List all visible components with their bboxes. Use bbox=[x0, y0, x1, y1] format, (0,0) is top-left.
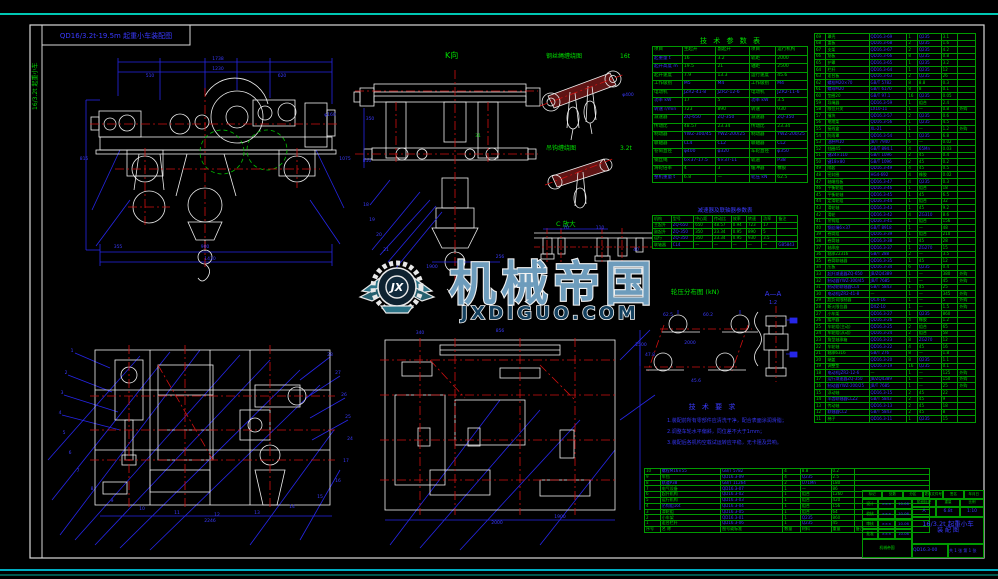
table-cell bbox=[958, 212, 976, 219]
table-cell: QD16.3-49 bbox=[869, 165, 907, 172]
dim-text: 1 bbox=[71, 348, 74, 354]
table-cell: 组合 bbox=[917, 185, 941, 192]
table-cell: 外购 bbox=[958, 271, 976, 278]
table-cell: QD16.3-41 bbox=[869, 218, 907, 225]
k-view-label: K向 bbox=[445, 50, 458, 60]
table-cell: QD16.3-26 bbox=[869, 317, 907, 324]
table-cell: GB/T 8918 bbox=[869, 225, 907, 232]
table-cell: LX10-11 bbox=[869, 106, 907, 113]
dim-text: 355 bbox=[114, 244, 123, 250]
title-block-sign-cell: ××× bbox=[878, 519, 895, 529]
table-cell bbox=[958, 310, 976, 317]
table-cell: 45 bbox=[815, 192, 826, 199]
table-cell: 6×37-17.5 bbox=[682, 157, 716, 166]
table-cell: Q235 bbox=[917, 264, 941, 271]
table-cell: 端盖 bbox=[826, 357, 869, 364]
table-cell: 2 bbox=[907, 152, 918, 159]
table-cell: — bbox=[917, 350, 941, 357]
table-cell: QD16.3-39 bbox=[869, 231, 907, 238]
dim-text: 20 bbox=[376, 232, 382, 238]
table-cell: 36 bbox=[815, 251, 826, 258]
table-cell bbox=[958, 113, 976, 120]
table-cell: 45 bbox=[917, 159, 941, 166]
table-cell: GB/T 288 bbox=[869, 251, 907, 258]
table-cell: 45 bbox=[917, 238, 941, 245]
dim-text: φ160 bbox=[324, 112, 336, 118]
table-cell: 11 bbox=[815, 416, 826, 423]
table-cell: QD16.3-13 bbox=[869, 403, 907, 410]
table-cell: QD16.3-27 bbox=[869, 310, 907, 317]
table-cell: 17 bbox=[815, 376, 826, 383]
table-cell: 2 bbox=[907, 73, 918, 80]
table-cell: CL2 bbox=[776, 140, 808, 149]
table-cell: 0.02 bbox=[941, 172, 958, 179]
table-cell: 平衡轮轴 bbox=[826, 192, 869, 199]
dim-text: 14 bbox=[289, 504, 295, 510]
table-cell: Q235 bbox=[917, 40, 941, 47]
table-cell bbox=[958, 198, 976, 205]
table-cell: — bbox=[869, 370, 907, 377]
table-cell: 组合 bbox=[917, 330, 941, 337]
table-cell: JB/T 7685 bbox=[869, 383, 907, 390]
table-cell: 45 bbox=[917, 343, 941, 350]
table-cell: 38 bbox=[815, 238, 826, 245]
table-cell: 转速 r/min bbox=[653, 106, 683, 115]
table-cell bbox=[958, 357, 976, 364]
table-cell: 组合 bbox=[917, 231, 941, 238]
table-cell: 8.6 bbox=[941, 212, 958, 219]
table-cell: — bbox=[917, 271, 941, 278]
table-cell: 2 bbox=[907, 403, 918, 410]
table-cell: 33 bbox=[815, 271, 826, 278]
table-cell: — bbox=[917, 297, 941, 304]
table-cell: 轴端挡板 bbox=[826, 179, 869, 186]
table-cell: 1 bbox=[907, 376, 918, 383]
title-block-header-cell: 更改文件号 bbox=[923, 490, 943, 499]
table-cell: 隔套 bbox=[826, 165, 869, 172]
table-cell: 150 bbox=[941, 376, 958, 383]
table-cell: — bbox=[869, 291, 907, 298]
table-cell: 1 bbox=[907, 106, 918, 113]
table-cell: 螺栓M20×70 bbox=[826, 80, 869, 87]
table-cell: 运行减速器ZQ-350 bbox=[826, 376, 869, 383]
table-cell: DXZ-10 bbox=[869, 304, 907, 311]
table-cell: QD16.3-19 bbox=[869, 363, 907, 370]
table-cell: ZG310 bbox=[917, 212, 941, 219]
table-cell: 7.9 bbox=[682, 72, 716, 81]
table-cell: 1 bbox=[907, 185, 918, 192]
table-cell: 1 bbox=[907, 271, 918, 278]
dim-text: 2000 bbox=[491, 520, 503, 526]
tech-requirements: 技 术 要 求 1.装配前所有零部件应清洗干净，配合表面涂润滑脂； 2.调整车轮… bbox=[667, 402, 787, 446]
table-cell: 15 bbox=[941, 416, 958, 423]
table-cell: 1 bbox=[907, 258, 918, 265]
table-cell: 卷筒组 bbox=[826, 231, 869, 238]
table-cell: GB/T 5843 bbox=[869, 409, 907, 416]
table-cell: 45 bbox=[917, 258, 941, 265]
dim-text: φ400 bbox=[622, 92, 634, 98]
table-cell: YWZ-200/25 bbox=[716, 132, 750, 141]
dim-text: 28 bbox=[327, 352, 333, 358]
table-cell: 20 bbox=[815, 357, 826, 364]
table-cell bbox=[958, 330, 976, 337]
table-cell: QD16.3-38 bbox=[869, 238, 907, 245]
table-cell: 1 bbox=[907, 225, 918, 232]
table-cell: 49 bbox=[815, 165, 826, 172]
table-cell bbox=[958, 152, 976, 159]
table-cell bbox=[958, 238, 976, 245]
table-cell: ZQ-350 bbox=[776, 115, 808, 124]
stage-header-cell: 重量 bbox=[936, 499, 960, 507]
table-cell: 联轴器 bbox=[653, 140, 683, 149]
dim-text: 815 bbox=[80, 156, 89, 162]
table-cell: 1 bbox=[907, 231, 918, 238]
table-cell: 13.3 bbox=[716, 72, 750, 81]
table-cell: 12 bbox=[941, 258, 958, 265]
table-cell: 0.02 bbox=[941, 139, 958, 146]
table-cell: 28 bbox=[815, 304, 826, 311]
table-cell: QD16.3-56 bbox=[869, 119, 907, 126]
tech-req-line: 3.装配后各机构空载试运转应平稳，无卡阻及异响。 bbox=[667, 439, 782, 446]
table-cell: — bbox=[716, 174, 750, 183]
table-cell: 4.5 bbox=[941, 119, 958, 126]
table-cell: 0.4 bbox=[941, 264, 958, 271]
table-cell: 45 bbox=[917, 403, 941, 410]
table-cell: 名 称 bbox=[660, 526, 720, 532]
tech-req-title: 技 术 要 求 bbox=[689, 402, 738, 411]
table-cell: — bbox=[917, 383, 941, 390]
dim-text: 19 bbox=[369, 217, 375, 223]
table-cell: QCX-16 bbox=[869, 297, 907, 304]
section-aa-view: A—A 1:2 bbox=[755, 290, 798, 382]
table-cell: 23.34 bbox=[716, 123, 750, 132]
tech-param-table: 项目主起升副起升项目运行机构起重量 t163.2轨距2000起升高度 m19.5… bbox=[652, 46, 808, 183]
title-block-sign-cell: 10.06 bbox=[895, 519, 912, 529]
table-cell: 滑轮轴 bbox=[826, 205, 869, 212]
table-cell: M4 bbox=[716, 81, 750, 90]
table-cell: 15 bbox=[941, 245, 958, 252]
title-block-sign-cell: 校核 bbox=[862, 509, 878, 519]
table-cell: 25 bbox=[941, 284, 958, 291]
table-cell: 轴承座 bbox=[826, 245, 869, 252]
table-cell: CL4 bbox=[682, 140, 716, 149]
table-cell: 13 bbox=[815, 403, 826, 410]
table-cell: 45 bbox=[917, 390, 941, 397]
table-cell: 6.5 bbox=[941, 192, 958, 199]
table-cell: 接线盒 bbox=[826, 126, 869, 133]
table-cell: QD16.3-20 bbox=[869, 357, 907, 364]
table-cell: — bbox=[917, 370, 941, 377]
table-cell: 69 bbox=[815, 34, 826, 41]
table-cell: 17 bbox=[682, 98, 716, 107]
table-cell: 1.6 bbox=[941, 40, 958, 47]
title-block-sign-cell: 设计 bbox=[862, 499, 878, 509]
table-cell: 轴承6316 bbox=[826, 350, 869, 357]
table-cell: 栏杆 bbox=[826, 66, 869, 73]
table-cell: 1.5 bbox=[941, 304, 958, 311]
side-rotated-label: 16/3.2t 起重小车 bbox=[31, 63, 39, 110]
table-cell: 60 bbox=[815, 93, 826, 100]
table-cell: 45 bbox=[917, 284, 941, 291]
table-cell bbox=[958, 119, 976, 126]
table-cell: 项目 bbox=[653, 47, 683, 56]
table-cell: 34 bbox=[815, 264, 826, 271]
table-cell: Q235 bbox=[917, 179, 941, 186]
table-cell: 3.2 bbox=[941, 60, 958, 67]
table-cell: GB5843 bbox=[777, 242, 798, 249]
table-cell: QD16.3-65 bbox=[869, 60, 907, 67]
table-cell: 37 bbox=[815, 245, 826, 252]
table-cell bbox=[958, 139, 976, 146]
title-block-signatures: 设计×××10.06校核×××10.06审核×××10.06批准×××10.06… bbox=[862, 499, 912, 558]
table-cell: 63 bbox=[815, 73, 826, 80]
table-cell: 12 bbox=[815, 409, 826, 416]
table-cell: 0.2 bbox=[941, 159, 958, 166]
table-cell: — bbox=[917, 225, 941, 232]
table-cell: — bbox=[917, 376, 941, 383]
table-cell: 主起升 bbox=[682, 47, 716, 56]
table-cell: QD16.3-22 bbox=[869, 343, 907, 350]
table-cell: QD16.3-47 bbox=[869, 179, 907, 186]
k-view: K向 bbox=[354, 50, 540, 292]
table-cell: GB/T 97.1 bbox=[869, 93, 907, 100]
table-cell: QD16.3-46 bbox=[869, 185, 907, 192]
table-cell: 45 bbox=[917, 396, 941, 403]
table-cell: 工作级别 bbox=[749, 81, 775, 90]
table-cell: Q235 bbox=[917, 34, 941, 41]
table-cell: QD16.3-57 bbox=[869, 113, 907, 120]
table-cell: 23 bbox=[815, 337, 826, 344]
table-cell: 64 bbox=[815, 66, 826, 73]
table-cell bbox=[958, 179, 976, 186]
table-cell: QD16.3-24 bbox=[869, 330, 907, 337]
table-cell: QD16.3-37 bbox=[869, 245, 907, 252]
table-cell: ZG270 bbox=[917, 337, 941, 344]
title-block: 标记处数分区更改文件号签名年月日 设计×××10.06校核×××10.06审核×… bbox=[862, 490, 984, 558]
table-cell: 8 bbox=[907, 350, 918, 357]
dim-text: 2000 bbox=[684, 340, 696, 346]
dim-text: 510 bbox=[146, 73, 155, 79]
table-cell: 轴距 bbox=[749, 64, 775, 73]
table-cell: 外购 bbox=[958, 106, 976, 113]
table-cell: JB/ZQ4389 bbox=[869, 271, 907, 278]
table-cell: 45 bbox=[917, 205, 941, 212]
table-cell: QD16.3-69 bbox=[869, 34, 907, 41]
dim-text: 1900 bbox=[554, 514, 566, 520]
dim-text: 31 bbox=[475, 133, 481, 139]
table-cell: 项目 bbox=[749, 47, 775, 56]
table-cell: 4 bbox=[907, 165, 918, 172]
table-cell: 橡胶 bbox=[917, 172, 941, 179]
table-cell: QD16.3-67 bbox=[869, 47, 907, 54]
table-cell: 26 bbox=[941, 73, 958, 80]
table-cell: 0.5 bbox=[941, 165, 958, 172]
tech-req-line: 2.调整车轮水平偏斜，同位差不大于1mm； bbox=[667, 428, 765, 435]
table-cell: QD16.3-64 bbox=[869, 66, 907, 73]
table-cell: 联轴器CL2 bbox=[826, 409, 869, 416]
table-cell: 4 bbox=[907, 317, 918, 324]
table-cell: 19.5 bbox=[682, 64, 716, 73]
table-cell: 2 bbox=[907, 324, 918, 331]
table-cell: 6.8 bbox=[682, 174, 716, 183]
table-cell: 键18×80 bbox=[826, 159, 869, 166]
dim-text: 17 bbox=[343, 458, 349, 464]
plan-view-left bbox=[48, 345, 348, 550]
table-cell: JZR2-12-6 bbox=[716, 89, 750, 98]
table-cell: GB/T 5843 bbox=[869, 396, 907, 403]
table-cell bbox=[958, 337, 976, 344]
table-cell: 车轮组(从动) bbox=[826, 330, 869, 337]
table-cell bbox=[958, 343, 976, 350]
dim-text: 47.8 bbox=[645, 352, 655, 358]
dim-text: 11 bbox=[174, 510, 180, 516]
table-cell: 减速器 bbox=[653, 115, 683, 124]
table-cell: 53 bbox=[815, 139, 826, 146]
table-cell: Q235 bbox=[917, 53, 941, 60]
table-cell: 传动轴 bbox=[826, 403, 869, 410]
table-cell: 1 bbox=[907, 60, 918, 67]
table-cell: 1 bbox=[907, 277, 918, 284]
table-cell: 16 bbox=[941, 343, 958, 350]
table-cell: 25 bbox=[815, 324, 826, 331]
dim-text: 6 bbox=[69, 450, 72, 456]
table-cell: 起重量 t bbox=[653, 55, 683, 64]
dim-text: 8 bbox=[91, 486, 94, 492]
table-cell bbox=[958, 251, 976, 258]
table-cell: 定滑轮组 bbox=[826, 198, 869, 205]
table-cell: 930 bbox=[776, 106, 808, 115]
table-cell: GB/T 1096 bbox=[869, 159, 907, 166]
table-cell: 制动器YWZ-200/25 bbox=[826, 383, 869, 390]
table-cell: QD16.3-66 bbox=[869, 53, 907, 60]
dim-text: 15 bbox=[317, 494, 323, 500]
table-cell: 超负荷限制器 bbox=[826, 297, 869, 304]
table-cell: 组合 bbox=[917, 198, 941, 205]
dim-text: 2500 bbox=[635, 342, 647, 348]
plan-view-middle bbox=[380, 330, 655, 550]
title-block-header-cell: 标记 bbox=[862, 490, 882, 499]
title-block-header-cell: 年月日 bbox=[964, 490, 984, 499]
table-cell: 1 bbox=[907, 383, 918, 390]
table-cell: 2500 bbox=[776, 64, 808, 73]
dim-text: 900 bbox=[201, 244, 210, 250]
dim-text: 26 bbox=[341, 392, 347, 398]
rope2-label: 吊钩缠绕图 bbox=[546, 144, 576, 152]
table-cell: 860 bbox=[941, 310, 958, 317]
table-cell: 运行速度 bbox=[749, 72, 775, 81]
table-cell: 轴承22316 bbox=[826, 251, 869, 258]
table-cell: JB/T 7685 bbox=[869, 277, 907, 284]
table-cell: 1 bbox=[907, 238, 918, 245]
table-cell: 4.2 bbox=[941, 47, 958, 54]
table-cell: 18 bbox=[941, 403, 958, 410]
table-cell: 1 bbox=[907, 370, 918, 377]
table-cell: 18 bbox=[815, 370, 826, 377]
table-cell: 材料 bbox=[800, 526, 831, 532]
table-cell: 45 bbox=[917, 409, 941, 416]
table-cell: — bbox=[917, 304, 941, 311]
table-cell: 缓冲器 bbox=[749, 166, 775, 175]
table-cell: 26 bbox=[815, 317, 826, 324]
table-cell: 制动器 bbox=[653, 132, 683, 141]
table-cell bbox=[958, 93, 976, 100]
table-cell: 22 bbox=[815, 343, 826, 350]
table-cell: 导绳器 bbox=[826, 99, 869, 106]
table-cell bbox=[958, 258, 976, 265]
table-cell: QD16.3-45 bbox=[869, 192, 907, 199]
table-cell bbox=[958, 403, 976, 410]
table-cell: 外购 bbox=[958, 291, 976, 298]
table-cell: 4 bbox=[907, 172, 918, 179]
table-cell: GB/T 276 bbox=[869, 350, 907, 357]
table-cell: Q235 bbox=[917, 310, 941, 317]
table-cell: 1 bbox=[907, 310, 918, 317]
table-cell: 组合 bbox=[917, 99, 941, 106]
table-cell: QD16.3-63 bbox=[869, 73, 907, 80]
dim-text: 18 bbox=[363, 202, 369, 208]
table-cell: 1 bbox=[907, 297, 918, 304]
table-cell: QD16.3-68 bbox=[869, 40, 907, 47]
table-cell bbox=[958, 99, 976, 106]
table-cell: JB/T 7940 bbox=[869, 139, 907, 146]
table-cell: 9.2 bbox=[941, 205, 958, 212]
title-block-sign-cell: 10.06 bbox=[895, 509, 912, 519]
table-cell: 支架 bbox=[826, 47, 869, 54]
dim-text: 21 bbox=[383, 247, 389, 253]
table-cell: 48 bbox=[815, 172, 826, 179]
title-block-sign-cell: 批准 bbox=[862, 529, 878, 539]
table-cell: 小车架 bbox=[826, 310, 869, 317]
table-cell: 24 bbox=[815, 330, 826, 337]
table-cell: 4 bbox=[907, 179, 918, 186]
table-cell: Q235 bbox=[917, 357, 941, 364]
table-cell bbox=[958, 317, 976, 324]
table-cell: 2 bbox=[907, 251, 918, 258]
table-cell: 联轴器 bbox=[653, 242, 672, 249]
table-cell: 调整垫 bbox=[826, 363, 869, 370]
table-cell: 制动器 bbox=[749, 132, 775, 141]
table-cell: 整机重量 t bbox=[653, 174, 683, 183]
table-cell: — bbox=[731, 242, 746, 249]
table-cell: 1 bbox=[907, 99, 918, 106]
table-cell: 1.8 bbox=[941, 350, 958, 357]
table-cell: 16 bbox=[907, 363, 918, 370]
table-cell: 电缆架 bbox=[826, 119, 869, 126]
table-cell: 45 bbox=[941, 277, 958, 284]
table-cell: 1 bbox=[907, 192, 918, 199]
drawing-number: QD16.3-00 bbox=[912, 544, 948, 558]
table-cell bbox=[958, 159, 976, 166]
table-cell: 6 bbox=[907, 264, 918, 271]
table-cell: 54 bbox=[815, 132, 826, 139]
table-cell bbox=[958, 40, 976, 47]
table-cell: 车轮直径 bbox=[749, 149, 775, 158]
table-cell: 外购 bbox=[958, 383, 976, 390]
rope1-scale: 16t bbox=[620, 53, 631, 60]
table-cell: 1 bbox=[907, 205, 918, 212]
table-cell: 67 bbox=[815, 47, 826, 54]
table-cell: 56 bbox=[815, 119, 826, 126]
table-cell: 制动器YWZ-300/45 bbox=[826, 277, 869, 284]
stage-value-cell: 6.8t bbox=[936, 507, 960, 517]
table-cell: 4 bbox=[907, 146, 918, 153]
table-cell: 8 bbox=[907, 337, 918, 344]
table-cell: 0.8 bbox=[941, 53, 958, 60]
table-cell: 44 bbox=[815, 198, 826, 205]
dim-text: 70 bbox=[563, 225, 569, 231]
watermark-logo-text: JX bbox=[389, 281, 404, 294]
table-cell bbox=[958, 363, 976, 370]
